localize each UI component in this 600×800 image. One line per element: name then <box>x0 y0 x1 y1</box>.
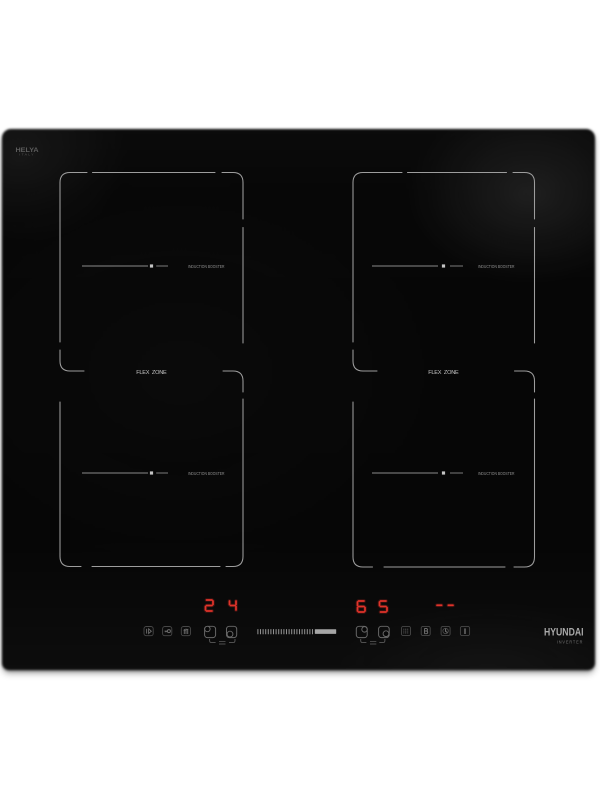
svg-text:INDUCTION BOOSTER: INDUCTION BOOSTER <box>188 471 225 476</box>
svg-text:INDUCTION BOOSTER: INDUCTION BOOSTER <box>478 264 515 269</box>
svg-text:INVERTER: INVERTER <box>557 640 584 645</box>
svg-text:FLEX ZONE: FLEX ZONE <box>136 370 167 376</box>
svg-text:ITALY: ITALY <box>19 153 35 157</box>
svg-text:FLEX ZONE: FLEX ZONE <box>428 370 459 376</box>
svg-text:INDUCTION BOOSTER: INDUCTION BOOSTER <box>188 264 225 269</box>
svg-text:HYUNDAI: HYUNDAI <box>544 626 584 638</box>
svg-text:INDUCTION BOOSTER: INDUCTION BOOSTER <box>478 471 515 476</box>
